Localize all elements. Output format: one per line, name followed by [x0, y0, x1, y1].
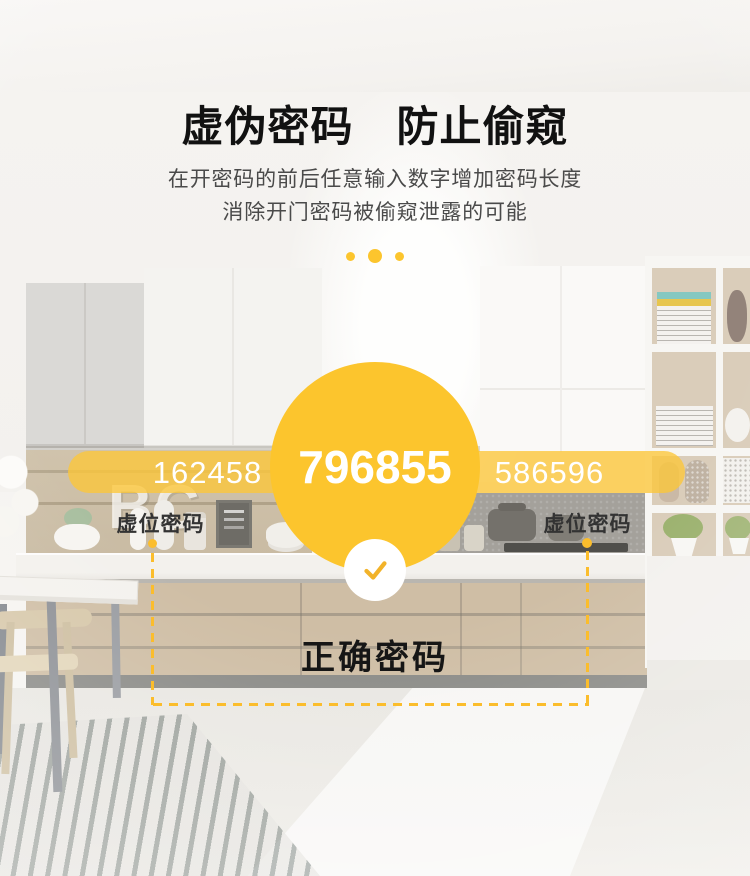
true-code-label: 正确密码	[0, 630, 750, 679]
dashed-line-bottom	[153, 703, 589, 706]
fake-code-label-left: 虚位密码	[98, 508, 223, 538]
dot-icon	[346, 252, 355, 261]
true-code: 796855	[298, 440, 452, 494]
subtitle-line-1: 在开密码的前后任意输入数字增加密码长度	[0, 168, 750, 192]
divider-dots	[0, 247, 750, 265]
check-icon	[358, 553, 392, 587]
dashed-line-left	[151, 553, 154, 705]
subtitle-line-2: 消除开门密码被偷窥泄露的可能	[0, 201, 750, 225]
check-badge	[344, 539, 406, 601]
dot-icon	[395, 252, 404, 261]
page-title: 虚伪密码 防止偷窥	[0, 103, 750, 151]
fake-code-label-right: 虚位密码	[525, 508, 650, 538]
content-layer: 虚伪密码 防止偷窥 在开密码的前后任意输入数字增加密码长度 消除开门密码被偷窥泄…	[0, 0, 750, 876]
dot-icon	[368, 249, 382, 263]
anchor-dot-left	[148, 539, 157, 548]
stage: BC	[0, 0, 750, 876]
dashed-line-right	[586, 551, 589, 705]
anchor-dot-right	[582, 538, 592, 548]
